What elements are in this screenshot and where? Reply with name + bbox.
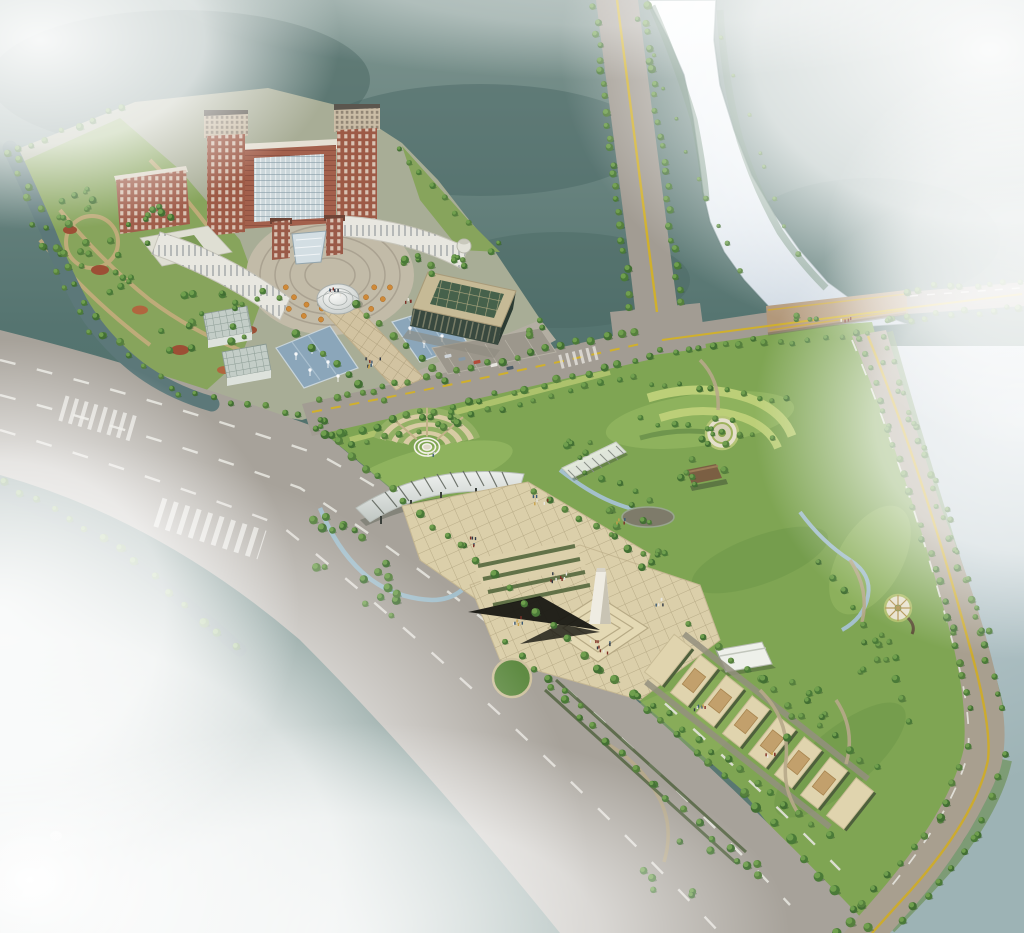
person-figure [598,646,599,649]
flower-bed [304,302,309,307]
person-figure [561,578,562,581]
person-figure [337,289,338,292]
fountain-jet-spray [326,360,329,363]
person-figure [371,361,372,364]
person-figure [533,495,534,498]
person-figure [590,640,591,643]
person-figure [369,360,370,363]
flower-bed [363,295,368,300]
person-figure [371,364,372,367]
flower-bed [369,306,374,311]
flower-bed [286,306,291,311]
tower-right [334,104,380,230]
person-figure [334,289,335,292]
person-figure [765,753,766,756]
scene-canvas [0,0,1024,933]
person-figure [609,643,610,646]
person-figure [518,623,519,626]
flower-bed [318,317,323,322]
person-figure [555,578,556,581]
person-figure [552,580,553,583]
person-figure [607,652,608,655]
person-figure [516,620,517,623]
flower-bed [387,285,392,290]
person-figure [603,650,604,653]
person-figure [566,573,567,576]
person-figure [408,298,409,301]
flower-bed [301,313,306,318]
person-figure [661,598,662,601]
person-figure [600,649,601,652]
person-figure [405,301,406,304]
fountain-jet-spray [336,374,339,377]
person-figure [547,499,548,502]
flower-bed [283,285,288,290]
person-figure [365,357,366,360]
person-figure [560,576,561,579]
person-figure [380,357,381,360]
masterplan-rendering [0,0,1024,933]
person-figure [624,522,625,525]
person-figure [544,502,545,505]
person-figure [513,622,514,625]
person-figure [618,518,619,521]
person-figure [368,366,369,369]
person-figure [552,572,553,575]
flower-bed [291,295,296,300]
person-figure [520,616,521,619]
flower-bed [380,297,385,302]
person-figure [597,646,598,649]
person-figure [774,753,775,756]
person-figure [550,579,551,582]
fountain-jet-spray [308,368,311,371]
person-figure [427,454,428,457]
person-figure [624,518,625,521]
person-figure [597,640,598,643]
person-figure [698,705,699,708]
person-figure [329,292,330,295]
person-figure [595,640,596,643]
person-figure [564,577,565,580]
person-figure [616,522,617,525]
person-figure [656,604,657,607]
person-figure [333,288,334,291]
person-figure [472,537,473,540]
person-figure [340,294,341,297]
fountain-jet-spray [408,326,411,329]
person-figure [536,495,537,498]
person-figure [329,289,330,292]
person-figure [767,755,768,758]
person-figure [433,454,434,457]
person-figure [410,300,411,303]
person-figure [694,708,695,711]
person-figure [536,499,537,502]
person-figure [470,537,471,540]
person-figure [475,537,476,540]
person-figure [702,704,703,707]
person-figure [473,544,474,547]
person-figure [771,752,772,755]
person-figure [522,622,523,625]
person-figure [658,603,659,606]
flower-bed [372,285,377,290]
person-figure [333,293,334,296]
person-figure [704,706,705,709]
person-figure [534,502,535,505]
person-figure [662,603,663,606]
person-figure [514,622,515,625]
fountain-jet-spray [294,352,297,355]
